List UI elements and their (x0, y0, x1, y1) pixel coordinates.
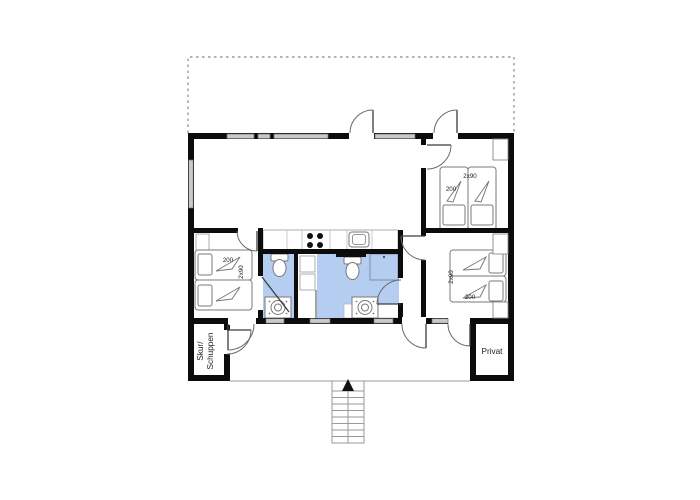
sink-icon (349, 232, 369, 247)
toilet-icon (346, 263, 359, 280)
bed-size-label: 2x90 (238, 265, 245, 279)
door-bedroomright-terrace (448, 324, 470, 346)
private-wall (508, 324, 514, 381)
wall (421, 139, 426, 145)
door-living-terrace (350, 110, 373, 133)
shed-wall (188, 324, 194, 381)
window (375, 134, 415, 139)
shower-tray-icon (265, 297, 291, 318)
window (258, 134, 270, 139)
wall (258, 310, 263, 318)
door-opening (349, 132, 374, 140)
door-opening (402, 317, 426, 325)
wall (421, 228, 508, 233)
toilet-icon (273, 260, 286, 277)
wall (421, 168, 426, 233)
door-opening (433, 132, 458, 140)
cabinet (300, 274, 315, 290)
window (189, 160, 194, 208)
door-hall-terrace (402, 324, 426, 348)
private-wall (470, 324, 476, 381)
wall (421, 260, 426, 318)
shed-label-line1: Skur/ (196, 341, 205, 361)
bed-length-label: 200 (223, 257, 234, 264)
pillow (489, 253, 503, 273)
kitchen-counter (263, 230, 398, 250)
bed-size-label: 2x90 (448, 270, 455, 284)
bed-length-label: 200 (446, 186, 457, 193)
door-opening (228, 317, 256, 325)
floorplan-canvas: 200 2x90 2x90 200 2x90 200 (0, 0, 700, 500)
shower-tray-icon (352, 297, 378, 318)
window-niche (493, 234, 508, 254)
door-bedroom-right (401, 236, 425, 260)
door-bedroom-topright (427, 145, 451, 169)
shower-head-icon (383, 256, 385, 258)
pillow (471, 205, 493, 225)
bedroom-top-right: 2x90 200 (440, 167, 496, 230)
wall (336, 249, 366, 257)
stairs (332, 379, 364, 443)
pillow (198, 285, 212, 306)
room-labels: Skur/ Schuppen Privat (196, 332, 503, 369)
private-wall (470, 375, 514, 381)
floorplan-drawing: 200 2x90 2x90 200 2x90 200 (0, 0, 700, 500)
terrace-dashed-outline (188, 57, 514, 133)
bed-size-label: 2x90 (463, 173, 477, 180)
pillow (198, 254, 212, 275)
private-label: Privat (482, 347, 504, 356)
window-niche (493, 139, 508, 160)
shed-label-line2: Schuppen (206, 332, 215, 369)
wall-east (508, 133, 514, 324)
bedroom-right: 2x90 200 (448, 250, 506, 302)
pillow (489, 281, 503, 301)
window (274, 134, 328, 139)
door-bedroom-left (237, 231, 257, 251)
window (227, 134, 254, 139)
window-niche (493, 302, 508, 318)
wall (294, 254, 298, 318)
wall (398, 230, 403, 278)
wall (194, 228, 238, 233)
window (432, 319, 448, 324)
cabinet (300, 256, 315, 272)
pillow (443, 205, 465, 225)
window (374, 319, 393, 324)
door-opening (448, 317, 470, 325)
kitchen (263, 230, 398, 250)
wall (258, 228, 263, 276)
cabinet-column (300, 256, 316, 318)
bed-length-label: 200 (465, 294, 476, 301)
window (310, 319, 330, 324)
window (266, 319, 284, 324)
door-bedroom-topright-terrace (434, 110, 457, 133)
wall (263, 249, 398, 254)
shed-wall (188, 375, 230, 381)
wall (398, 303, 403, 318)
